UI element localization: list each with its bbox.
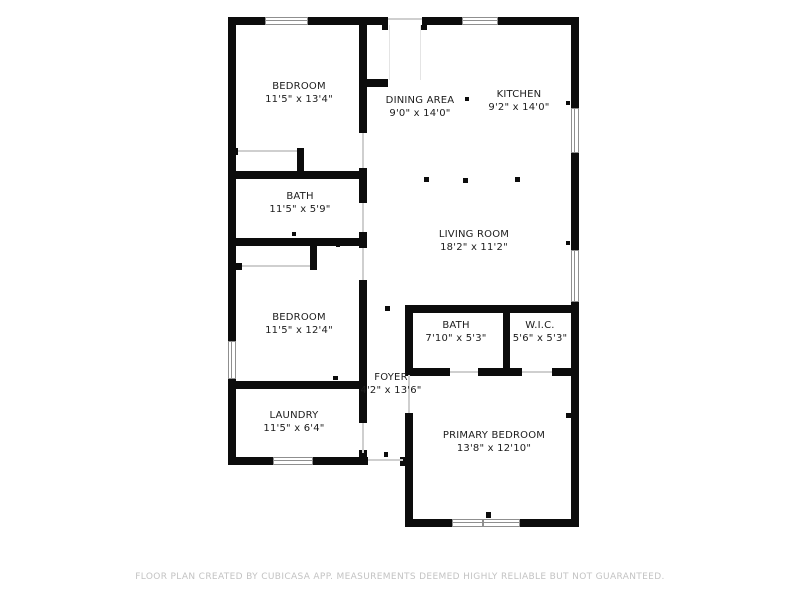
- window: [452, 519, 483, 527]
- wall-segment: [228, 148, 238, 155]
- door-opening: [242, 265, 310, 267]
- room-label-foyer: FOYER 4'2" x 13'6": [360, 371, 421, 397]
- wall-segment: [552, 368, 571, 376]
- room-label-bath-1: BATH 11'5" x 5'9": [269, 190, 330, 216]
- window: [265, 17, 308, 25]
- room-dims: 5'6" x 5'3": [513, 332, 568, 345]
- wall-segment: [228, 238, 367, 246]
- wall-segment: [228, 381, 367, 389]
- room-dims: 11'5" x 13'4": [265, 93, 333, 106]
- door-opening: [362, 203, 364, 232]
- room-label-bedroom-2: BEDROOM 11'5" x 12'4": [265, 311, 333, 337]
- wall-segment: [571, 302, 579, 527]
- wall-segment: [571, 153, 579, 250]
- door-marker: [463, 178, 468, 183]
- footer-disclaimer: FLOOR PLAN CREATED BY CUBICASA APP. MEAS…: [0, 572, 800, 582]
- wall-segment: [310, 245, 317, 270]
- door-opening: [362, 423, 364, 453]
- front-door-opening: [368, 459, 403, 461]
- wall-cap: [382, 25, 388, 30]
- room-dims: 13'8" x 12'10": [443, 442, 545, 455]
- opening-extent-line: [389, 25, 390, 80]
- room-label-bath-2: BATH 7'10" x 5'3": [425, 319, 486, 345]
- floor-plan-image: BEDROOM 11'5" x 13'4" DINING AREA 9'0" x…: [0, 0, 800, 600]
- door-marker: [566, 413, 571, 418]
- window-mullion-marker: [486, 512, 491, 518]
- window: [483, 519, 520, 527]
- door-marker: [515, 177, 520, 182]
- room-dims: 11'5" x 6'4": [263, 422, 324, 435]
- wall-segment: [478, 368, 522, 376]
- wall-segment: [405, 413, 413, 527]
- room-name: PRIMARY BEDROOM: [443, 429, 545, 442]
- door-marker: [385, 306, 390, 311]
- room-dims: 11'5" x 12'4": [265, 324, 333, 337]
- door-marker: [333, 376, 338, 380]
- wall-segment: [413, 305, 571, 313]
- wall-segment: [405, 519, 452, 527]
- door-marker: [384, 452, 388, 457]
- room-name: BEDROOM: [265, 80, 333, 93]
- room-name: LIVING ROOM: [439, 228, 509, 241]
- door-marker: [465, 97, 469, 101]
- opening-extent-line: [420, 25, 421, 80]
- wall-segment: [520, 519, 579, 527]
- wall-segment: [498, 17, 579, 25]
- wall-segment: [228, 457, 273, 465]
- room-dims: 9'0" x 14'0": [386, 107, 455, 120]
- door-opening: [522, 371, 552, 373]
- room-dims: 7'10" x 5'3": [425, 332, 486, 345]
- room-label-bedroom-1: BEDROOM 11'5" x 13'4": [265, 80, 333, 106]
- wall-segment: [571, 17, 579, 108]
- room-label-living-room: LIVING ROOM 18'2" x 11'2": [439, 228, 509, 254]
- door-marker: [330, 20, 335, 25]
- room-label-kitchen: KITCHEN 9'2" x 14'0": [488, 88, 549, 114]
- door-opening: [362, 133, 364, 168]
- door-marker: [292, 232, 296, 236]
- room-label-primary-bedroom: PRIMARY BEDROOM 13'8" x 12'10": [443, 429, 545, 455]
- wall-segment: [228, 263, 242, 270]
- wall-segment: [228, 379, 236, 465]
- room-name: DINING AREA: [386, 94, 455, 107]
- wall-segment: [367, 79, 388, 87]
- wall-segment: [359, 280, 367, 423]
- room-dims: 18'2" x 11'2": [439, 241, 509, 254]
- wall-segment: [405, 305, 413, 376]
- door-marker: [566, 101, 570, 105]
- window: [273, 457, 313, 465]
- room-name: FOYER: [360, 371, 421, 384]
- wall-segment: [359, 25, 367, 133]
- room-dims: 4'2" x 13'6": [360, 384, 421, 397]
- door-opening: [388, 18, 422, 20]
- room-name: BATH: [425, 319, 486, 332]
- wall-segment: [297, 148, 304, 179]
- room-name: BATH: [269, 190, 330, 203]
- door-opening: [450, 371, 478, 373]
- room-label-wic: W.I.C. 5'6" x 5'3": [513, 319, 568, 345]
- wall-cap: [421, 25, 427, 30]
- window: [462, 17, 498, 25]
- room-dims: 9'2" x 14'0": [488, 101, 549, 114]
- room-label-laundry: LAUNDRY 11'5" x 6'4": [263, 409, 324, 435]
- window: [228, 341, 236, 379]
- window: [571, 108, 579, 153]
- room-label-dining-area: DINING AREA 9'0" x 14'0": [386, 94, 455, 120]
- door-opening: [238, 150, 297, 152]
- room-dims: 11'5" x 5'9": [269, 203, 330, 216]
- wall-segment: [308, 17, 388, 25]
- door-marker: [230, 85, 235, 90]
- wall-segment: [422, 17, 462, 25]
- door-marker: [424, 177, 429, 182]
- wall-segment: [228, 17, 236, 341]
- window: [571, 250, 579, 302]
- door-marker: [336, 243, 340, 247]
- room-name: BEDROOM: [265, 311, 333, 324]
- wall-segment: [503, 313, 510, 376]
- room-name: KITCHEN: [488, 88, 549, 101]
- room-name: LAUNDRY: [263, 409, 324, 422]
- door-opening: [362, 248, 364, 280]
- door-marker: [566, 241, 570, 245]
- room-name: W.I.C.: [513, 319, 568, 332]
